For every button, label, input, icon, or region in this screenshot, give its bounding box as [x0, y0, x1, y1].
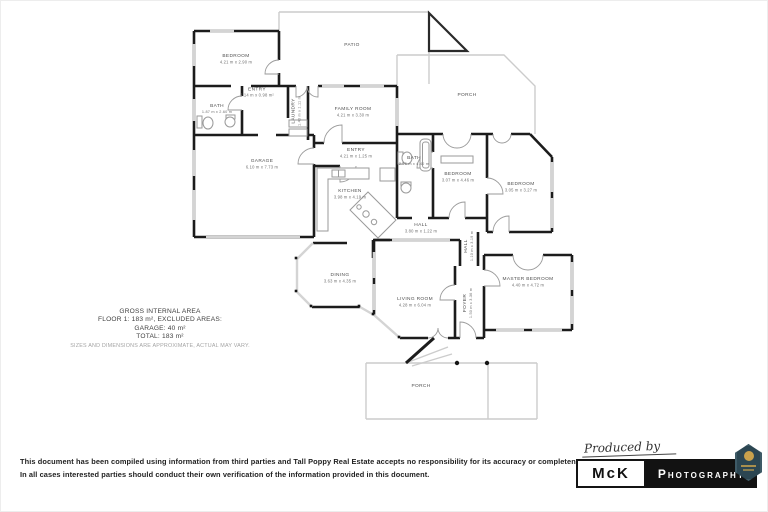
- room-label-bath-2-dims: 2.25 m x 4.40 m: [399, 162, 429, 166]
- wardrobe: [441, 156, 473, 163]
- room-label-bedroom-3-dims: 3.05 m x 3.27 m: [505, 188, 538, 193]
- stove-burner: [357, 205, 361, 209]
- porch-bottom-outline: [366, 363, 537, 419]
- produced-by-script: Produced by: [582, 438, 677, 457]
- porch-post: [485, 361, 489, 365]
- fridge: [380, 168, 395, 181]
- room-label-garage-name: GARAGE: [251, 158, 274, 164]
- stove-burner: [371, 219, 376, 224]
- badge-emblem-icon: [744, 451, 754, 461]
- room-label-family-room-name: FAMILY ROOM: [335, 106, 372, 112]
- room-label-kitchen-dims: 3.98 m x 4.19 m: [334, 195, 367, 200]
- room-label-garage-dims: 6.10 m x 7.73 m: [246, 165, 279, 170]
- room-label-bedroom-1-dims: 4.21 m x 2.90 m: [220, 60, 253, 65]
- laundry-shelf: [289, 129, 307, 136]
- room-label-foyer-dims: 1.50 m x 3.36 m: [469, 288, 473, 318]
- room-label-porch-bottom: PORCH: [411, 383, 430, 389]
- toilet-tank: [197, 116, 202, 128]
- corner-posts: [295, 257, 489, 365]
- area-summary-title: GROSS INTERNAL AREA: [55, 308, 265, 316]
- stair-edge: [406, 338, 434, 363]
- room-label-bedroom-1-name: BEDROOM: [222, 53, 249, 59]
- room-label-hall-1-name: HALL: [414, 222, 427, 228]
- floorplan-drawing: BEDROOM 4.21 m x 2.90 m ENTRY 2.14 m x 0…: [0, 0, 768, 440]
- room-label-master-bedroom-dims: 4.40 m x 4.72 m: [512, 283, 545, 288]
- photographer-logo: Produced by McK Photography: [576, 438, 768, 498]
- area-summary-floor: FLOOR 1: 183 m², EXCLUDED AREAS:: [55, 316, 265, 324]
- room-label-patio: PATIO: [344, 42, 359, 48]
- room-label-entry-1-dims: 2.14 m x 0.98 m²: [240, 93, 274, 98]
- floorplan-page: BEDROOM 4.21 m x 2.90 m ENTRY 2.14 m x 0…: [0, 0, 768, 512]
- disclaimer-line-1: This document has been compiled using in…: [20, 456, 620, 469]
- room-label-bedroom-2-name: BEDROOM: [444, 171, 471, 177]
- area-summary: GROSS INTERNAL AREA FLOOR 1: 183 m², EXC…: [55, 308, 265, 350]
- room-label-bath-2-name: BATH: [407, 155, 421, 161]
- room-label-hall-2-name: HALL: [463, 239, 469, 252]
- badge-text-bar: [743, 469, 754, 471]
- room-label-bath-1-dims: 1.87 m x 2.60 m: [202, 110, 232, 114]
- room-label-kitchen-name: KITCHEN: [338, 188, 362, 194]
- area-summary-garage: GARAGE: 40 m²: [55, 325, 265, 333]
- room-label-hall-2-dims: 1.10 m x 3.19 m: [470, 231, 474, 261]
- room-label-dining-name: DINING: [331, 272, 350, 278]
- disclaimer: This document has been compiled using in…: [20, 456, 620, 482]
- basin: [401, 183, 411, 193]
- disclaimer-line-2: In all cases interested parties should c…: [20, 469, 620, 482]
- room-label-master-bedroom-name: MASTER BEDROOM: [502, 276, 553, 282]
- room-label-family-room-dims: 4.21 m x 3.30 m: [337, 113, 370, 118]
- room-label-bedroom-2-dims: 3.07 m x 4.46 m: [442, 178, 475, 183]
- badge-text-bar: [741, 465, 756, 467]
- roof-triangle: [429, 13, 467, 51]
- brand-box: McK Photography: [576, 459, 757, 488]
- room-label-laundry-name: LAUNDRY: [291, 98, 297, 124]
- brand-name-short: McK: [576, 459, 646, 488]
- patio-outline: [279, 12, 429, 84]
- area-summary-note: SIZES AND DIMENSIONS ARE APPROXIMATE, AC…: [55, 343, 265, 350]
- room-label-hall-1-dims: 3.80 m x 1.22 m: [405, 229, 438, 234]
- room-label-laundry-dims: 1.40 m x 1.11 m: [298, 96, 302, 126]
- stove-burner: [363, 211, 369, 217]
- room-label-foyer-name: FOYER: [462, 294, 468, 312]
- room-label-bath-1-name: BATH: [210, 103, 224, 109]
- door-swings: [228, 60, 543, 338]
- room-label-entry-2-name: ENTRY: [347, 147, 365, 153]
- room-label-bedroom-3-name: BEDROOM: [507, 181, 534, 187]
- dining-bay-windows: [297, 243, 400, 338]
- room-label-living-room-name: LIVING ROOM: [397, 296, 433, 302]
- room-label-living-room-dims: 4.28 m x 6.04 m: [399, 303, 432, 308]
- room-label-porch-top: PORCH: [457, 92, 476, 98]
- room-label-dining-dims: 3.63 m x 4.35 m: [324, 279, 357, 284]
- toilet-bowl: [203, 117, 213, 129]
- area-summary-total: TOTAL: 183 m²: [55, 333, 265, 341]
- room-label-entry-2-dims: 4.21 m x 1.25 m: [340, 154, 373, 159]
- porch-post: [455, 361, 459, 365]
- basin: [225, 117, 235, 127]
